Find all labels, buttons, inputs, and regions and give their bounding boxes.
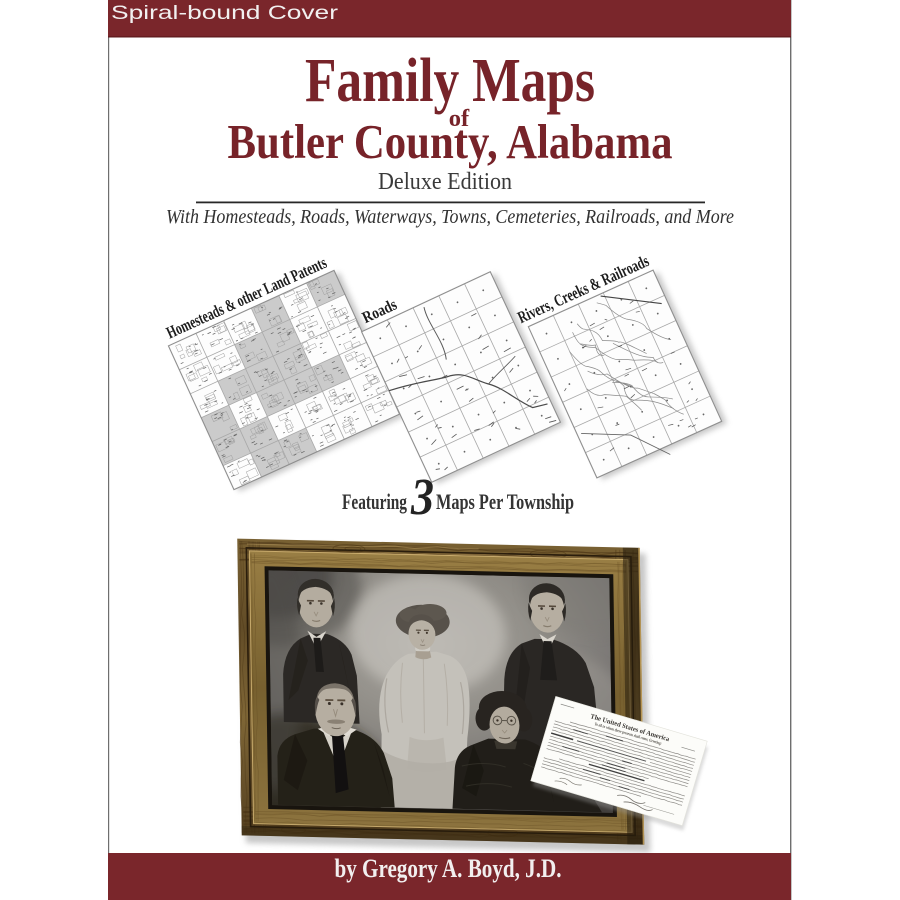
svg-text:3: 3 [410,469,434,526]
svg-text:With Homesteads, Roads, Waterw: With Homesteads, Roads, Waterways, Towns… [166,206,734,228]
svg-text:by Gregory A. Boyd, J.D.: by Gregory A. Boyd, J.D. [335,854,562,883]
svg-text:Spiral-bound Cover: Spiral-bound Cover [111,2,339,24]
svg-text:Maps Per Township: Maps Per Township [436,489,574,514]
svg-text:Butler County, Alabama: Butler County, Alabama [228,116,673,169]
svg-text:Featuring: Featuring [342,489,407,514]
svg-text:Deluxe Edition: Deluxe Edition [378,169,512,195]
